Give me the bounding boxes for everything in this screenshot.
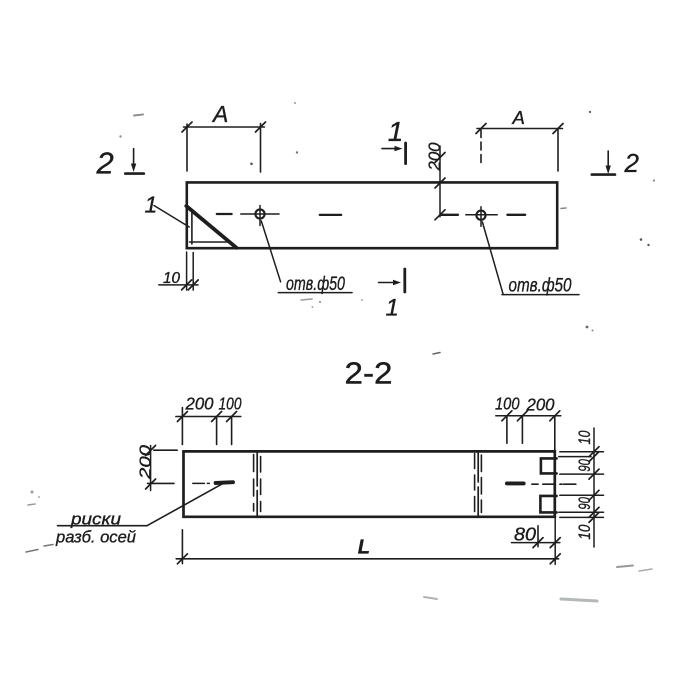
svg-text:100: 100	[495, 394, 520, 414]
svg-text:80: 80	[514, 525, 536, 545]
svg-text:1: 1	[145, 192, 158, 218]
svg-text:200: 200	[526, 395, 555, 415]
svg-text:10: 10	[575, 524, 594, 539]
svg-text:A: A	[211, 101, 228, 127]
svg-text:100: 100	[219, 394, 242, 414]
svg-text:риски: риски	[70, 510, 122, 529]
svg-text:200: 200	[138, 445, 155, 480]
svg-text:10: 10	[575, 430, 594, 444]
svg-text:L: L	[358, 537, 370, 559]
svg-text:2: 2	[96, 146, 114, 181]
svg-text:90: 90	[575, 497, 594, 510]
svg-text:отв.ф50: отв.ф50	[509, 276, 572, 297]
svg-text:разб. осей: разб. осей	[55, 528, 137, 547]
svg-text:200: 200	[185, 394, 214, 414]
svg-text:2-2: 2-2	[345, 356, 393, 391]
svg-text:10: 10	[163, 270, 180, 287]
svg-text:1: 1	[388, 116, 404, 147]
svg-text:отв.ф50: отв.ф50	[286, 274, 345, 295]
svg-text:A: A	[512, 107, 525, 128]
svg-text:2: 2	[624, 148, 640, 178]
svg-text:90: 90	[575, 459, 594, 472]
svg-text:200: 200	[425, 142, 444, 172]
svg-text:1: 1	[386, 295, 399, 322]
